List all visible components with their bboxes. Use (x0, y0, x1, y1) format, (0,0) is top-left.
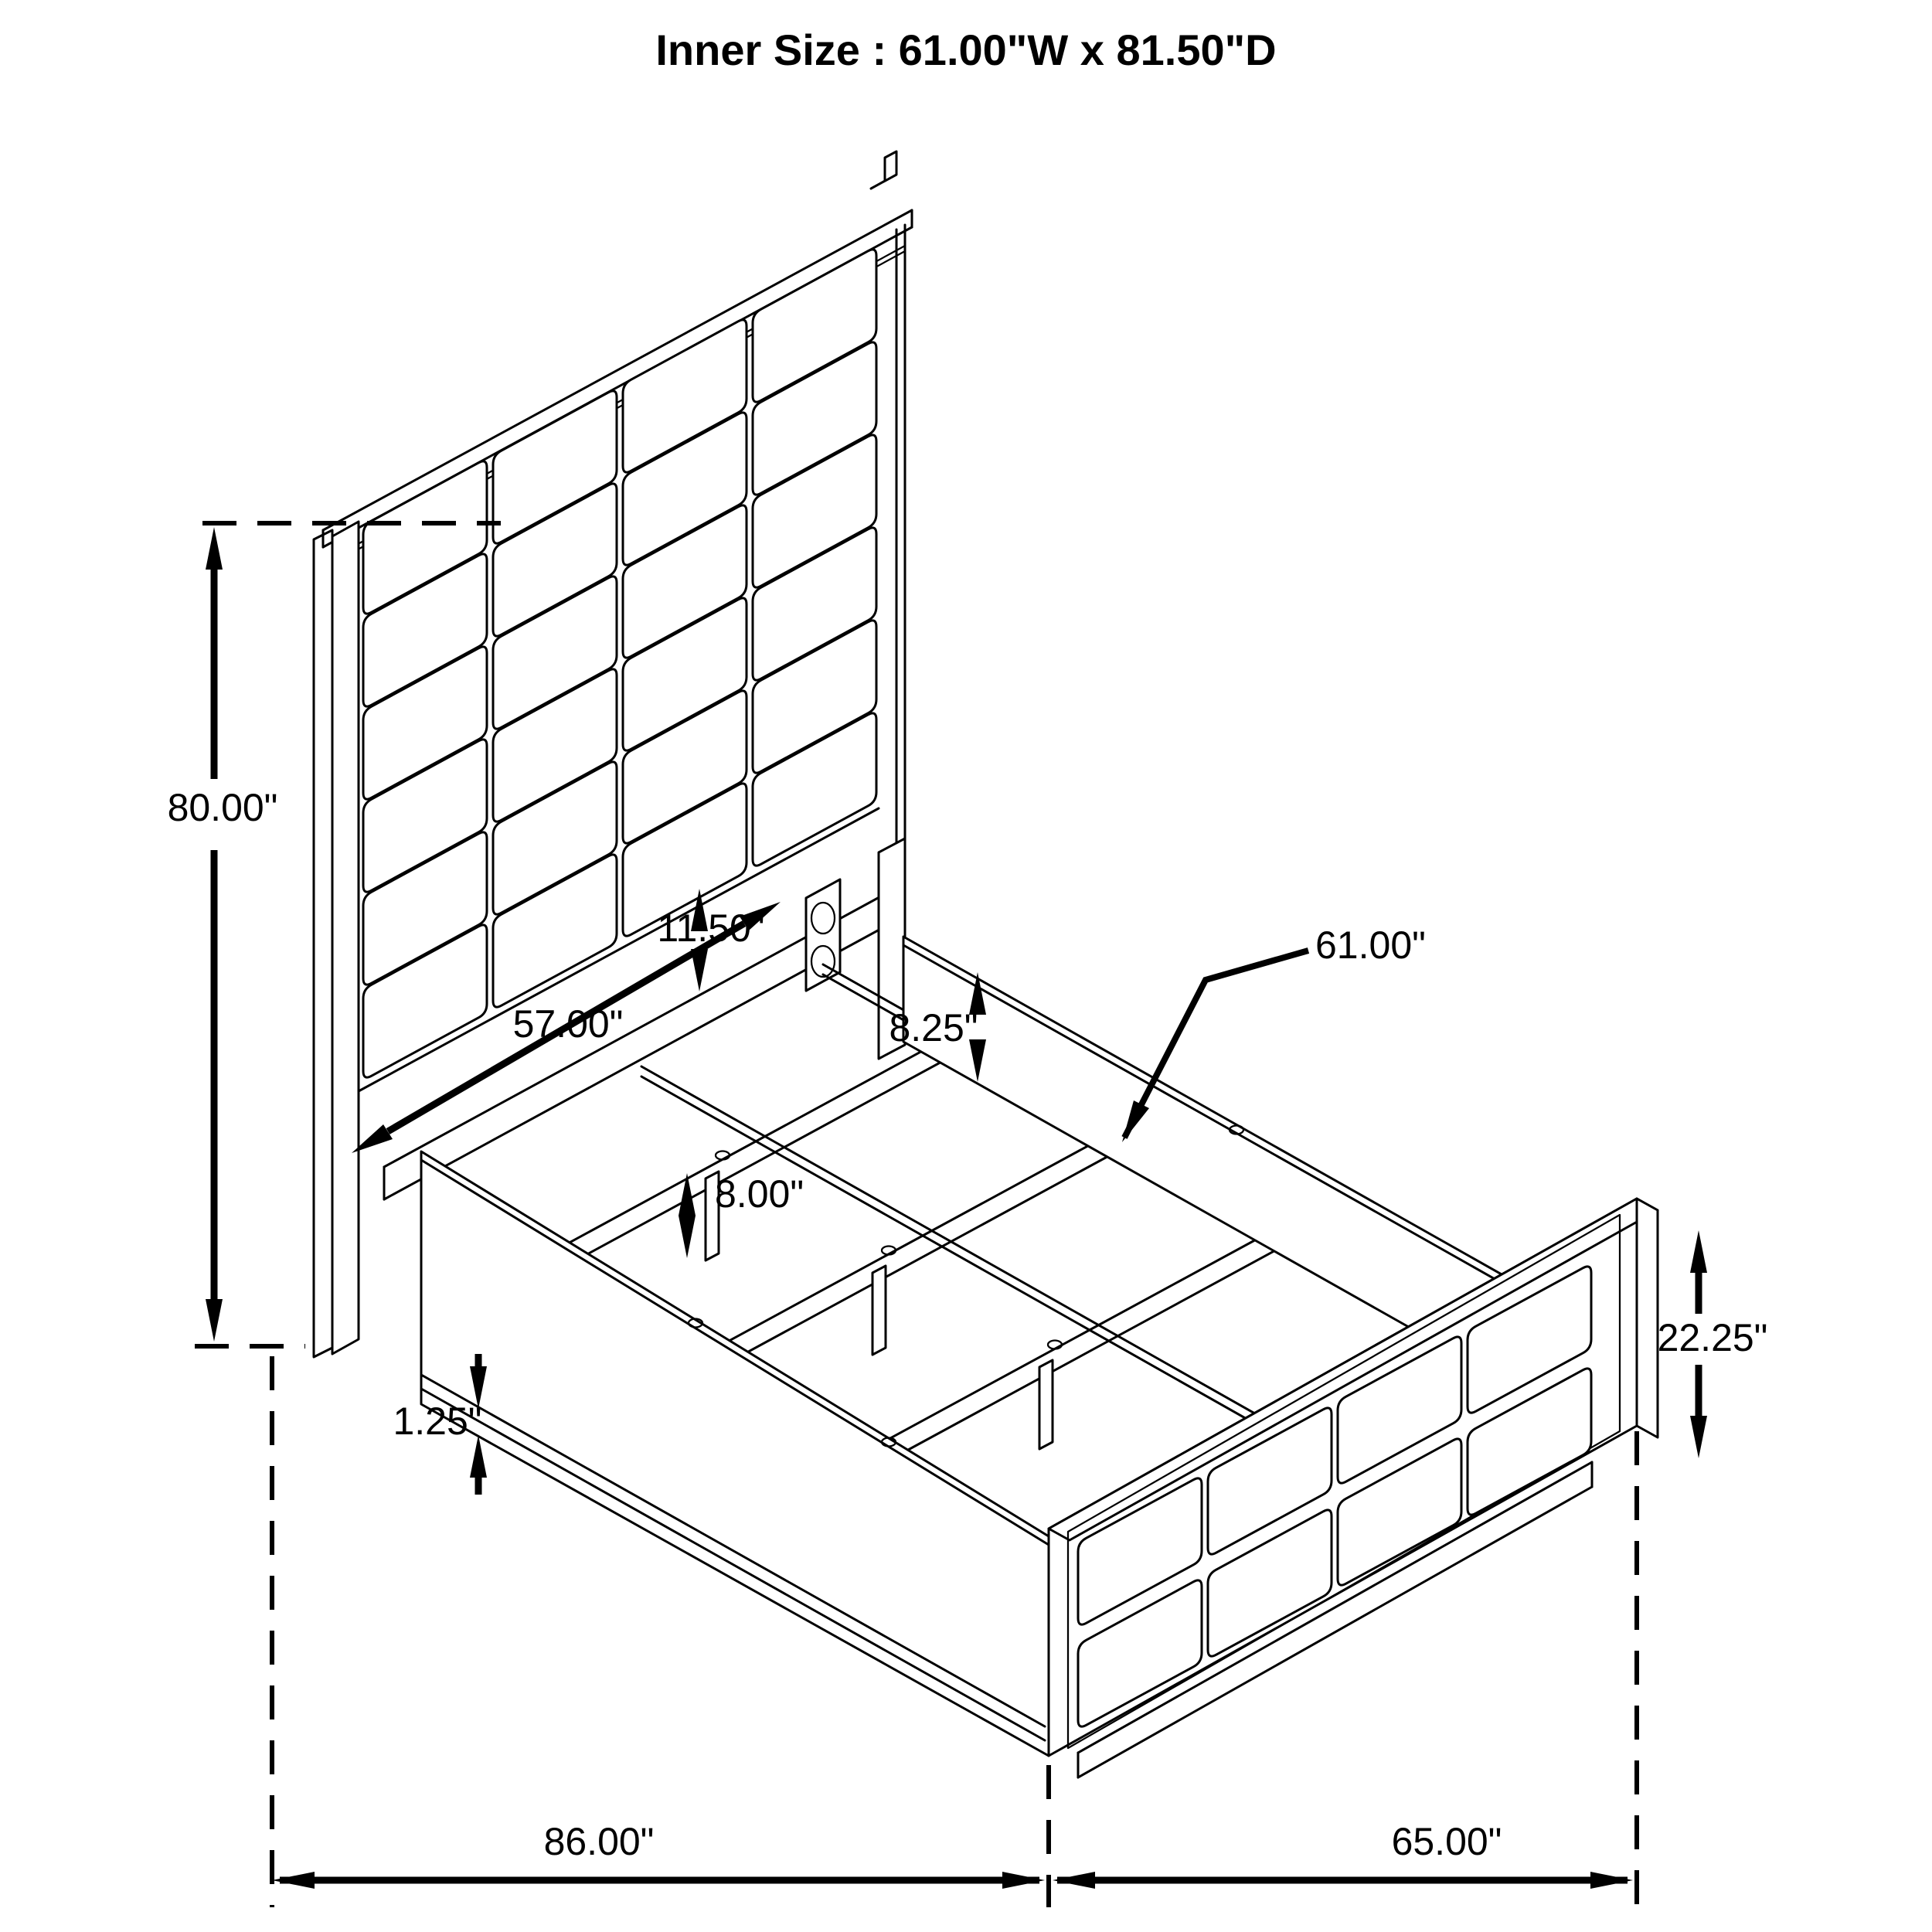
dim-footboard-height: 22.25" (1658, 1230, 1768, 1458)
footboard-end-cap (1637, 1199, 1658, 1437)
left-side-rail (421, 1151, 1049, 1756)
dim-label-rail-top-height: 8.25" (889, 1006, 978, 1049)
dim-overall-length: 86.00" (272, 1820, 1045, 1889)
dim-label-slat-length: 61.00" (1315, 923, 1426, 967)
headboard-left-leg (332, 522, 359, 1354)
headboard (314, 151, 912, 1357)
dim-label-overall-length: 86.00" (544, 1820, 655, 1863)
dim-label-inner-rail-width: 57.00" (513, 1002, 624, 1046)
dim-overall-width: 65.00" (1053, 1820, 1633, 1889)
headboard-back-post (314, 530, 332, 1357)
dim-label-support-leg-height: 8.00" (715, 1172, 804, 1216)
headboard-tufted-cushions (363, 250, 876, 1077)
headboard-top-notch (871, 151, 896, 189)
dim-label-overall-width: 65.00" (1392, 1820, 1502, 1863)
bed-dimension-diagram: Inner Size : 61.00"W x 81.50"D (0, 0, 1932, 1932)
dim-label-headboard-height: 80.00" (168, 786, 278, 829)
dim-label-rail-thickness: 1.25" (393, 1400, 481, 1443)
bed-dimension-diagram-page: Inner Size : 61.00"W x 81.50"D (0, 0, 1932, 1932)
diagram-title: Inner Size : 61.00"W x 81.50"D (655, 26, 1276, 74)
dim-support-leg-height: 8.00" (679, 1172, 804, 1258)
dim-label-footboard-height: 22.25" (1658, 1316, 1768, 1359)
bed-isometric-drawing (314, 151, 1658, 1777)
